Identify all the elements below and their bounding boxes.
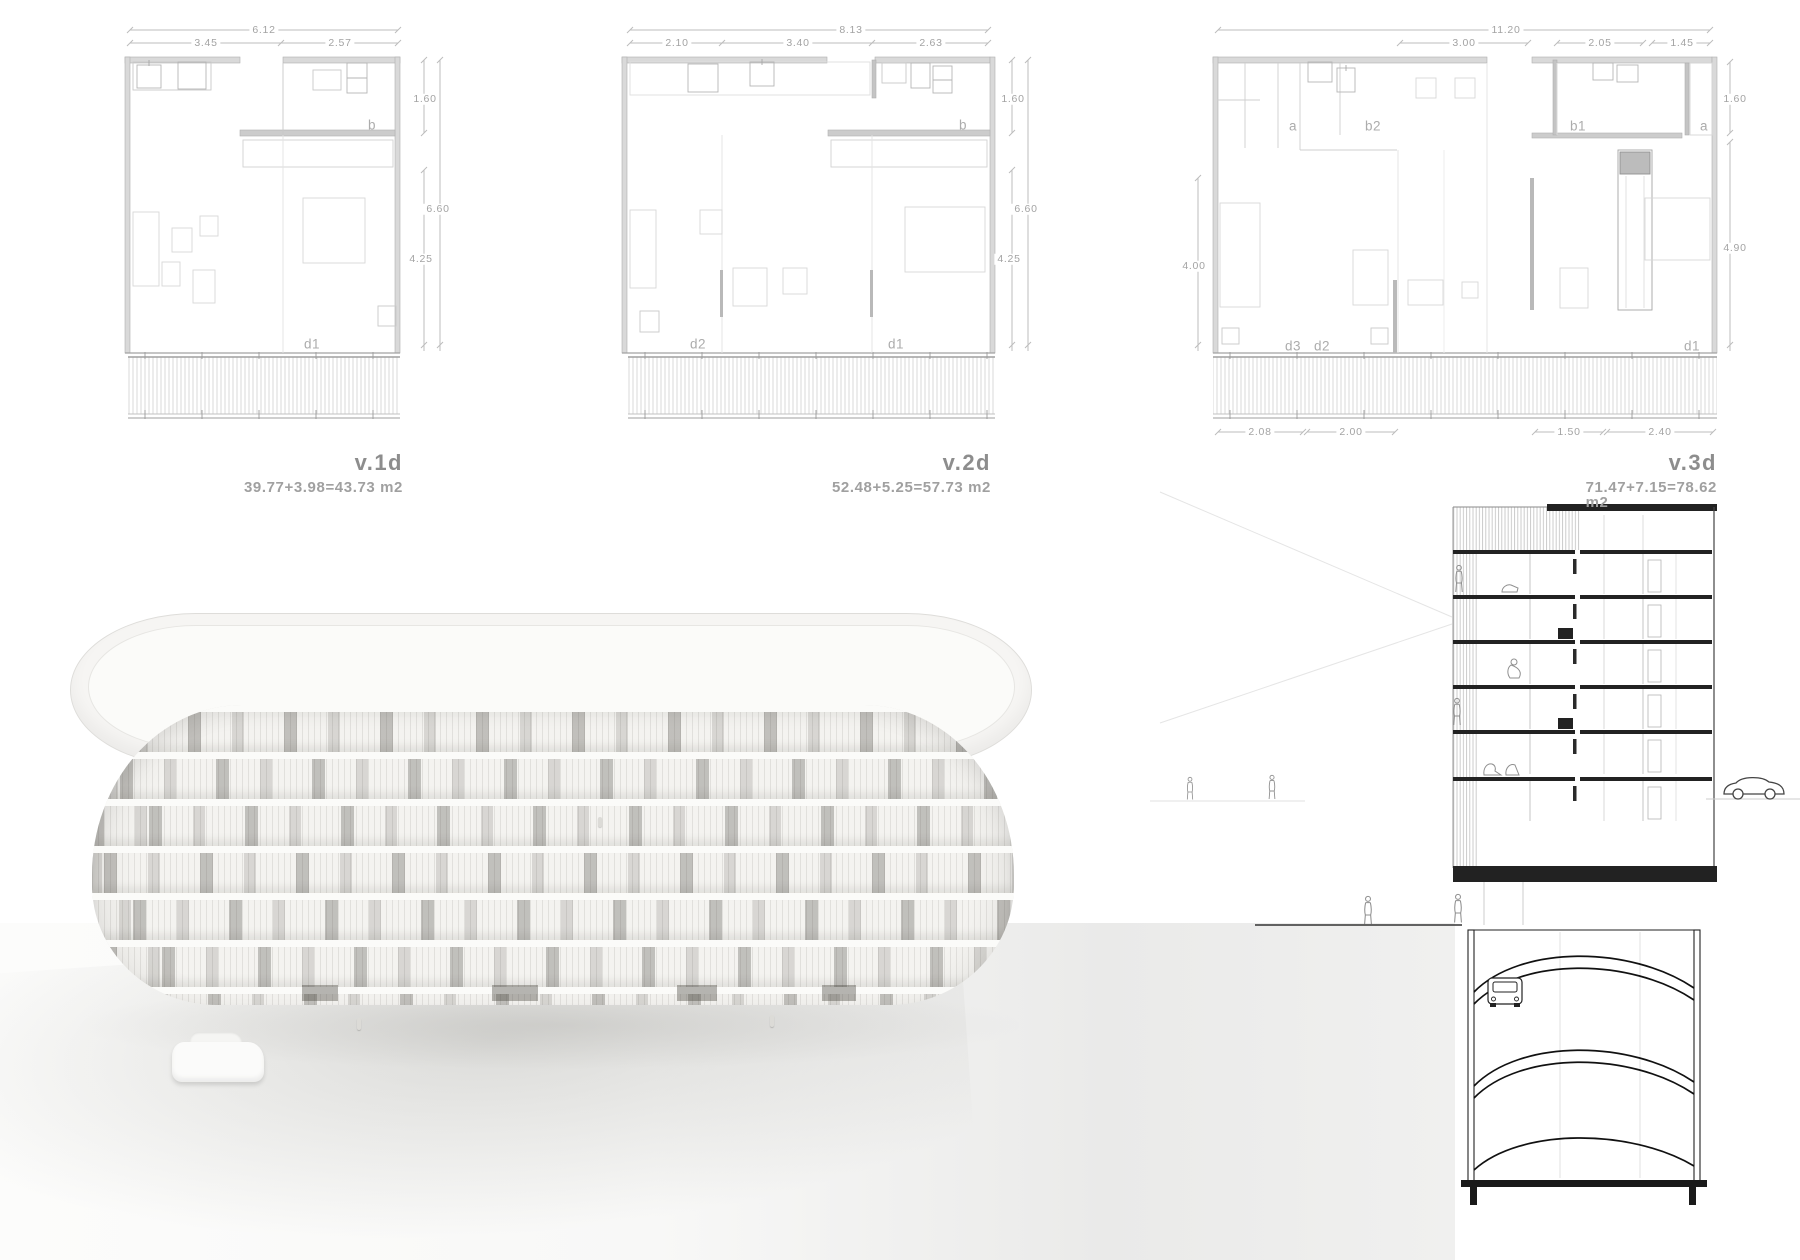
- plan1-walls: [125, 57, 400, 353]
- roof-slab: [1547, 504, 1717, 511]
- drawings-linework: [0, 0, 1800, 1260]
- section-drawing: [1150, 492, 1800, 1205]
- seated-people-icon: [1484, 764, 1519, 775]
- plan3-walls: [1213, 57, 1717, 353]
- pedestrian-icon: [1365, 896, 1372, 924]
- pedestrian-icon: [1269, 775, 1275, 799]
- car-side-icon: [1706, 778, 1800, 799]
- plan1-furniture: [133, 198, 396, 326]
- plan2-balcony: [628, 352, 995, 419]
- dog-icon: [1502, 585, 1518, 592]
- plan3-balcony: [1213, 352, 1717, 419]
- car-front-icon: [1488, 978, 1522, 1007]
- sight-lines: [1160, 492, 1452, 723]
- plan3-interior: [1217, 62, 1712, 353]
- roof-screen: [1477, 507, 1580, 550]
- plan3-drawing: [1195, 27, 1733, 435]
- person-icon: [1511, 659, 1517, 665]
- pedestrian-icon: [1187, 777, 1192, 799]
- floor-slabs: [1453, 550, 1717, 882]
- parking-section: [1461, 930, 1707, 1205]
- section-floor-interiors: [1530, 515, 1676, 821]
- plan1-drawing: [125, 27, 443, 419]
- plan2-walls: [622, 57, 995, 353]
- plan2-furniture: [630, 207, 985, 332]
- pedestrian-icon: [1455, 894, 1462, 922]
- plan2-interior: [630, 59, 987, 353]
- plan3-furniture: [1220, 78, 1710, 344]
- plan1-interior: [133, 60, 393, 353]
- presentation-board: 6.12 3.45 2.57 1.60 6.60 4.25 b d1 v.1d …: [0, 0, 1800, 1260]
- plan1-balcony: [128, 352, 400, 419]
- plan2-drawing: [622, 27, 1031, 419]
